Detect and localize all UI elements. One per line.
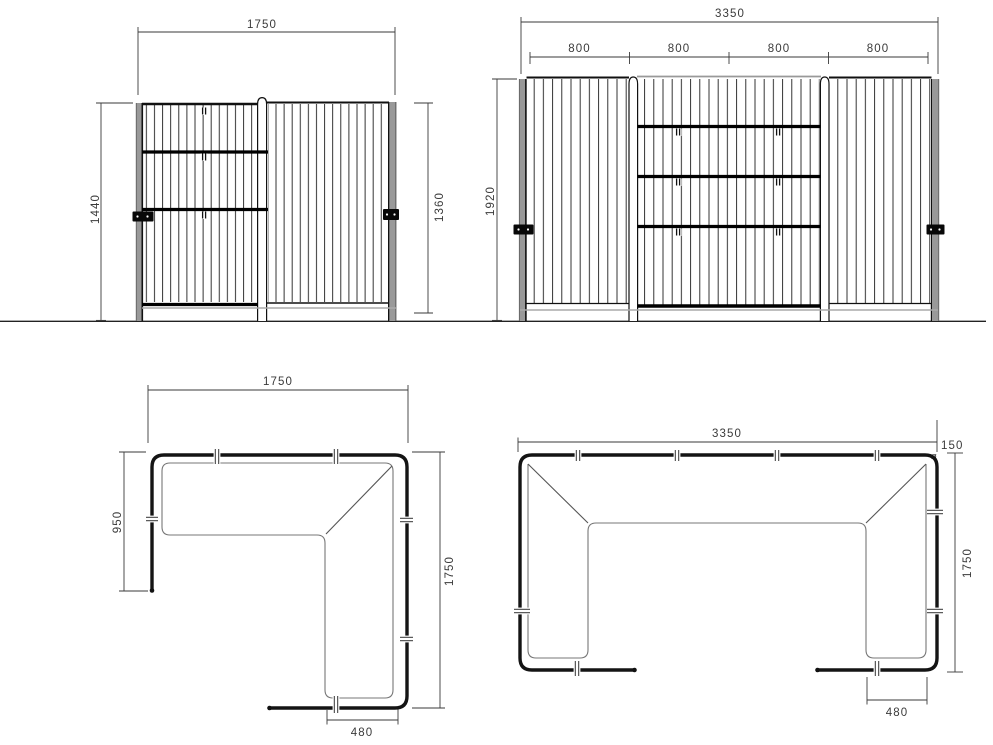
bracket-bolt [386, 213, 388, 215]
left-post [519, 79, 526, 321]
bracket-bolt [136, 215, 138, 217]
frame-tube-2 [820, 77, 829, 321]
dim-side-depth-label: 950 [112, 511, 124, 534]
slat-panel-middle [639, 79, 820, 305]
foot-dot [150, 588, 155, 593]
straight-screen-structure [514, 77, 945, 322]
foot-dot [815, 668, 820, 673]
dim-panel-label-3: 800 [768, 43, 791, 55]
dim-height-total-label: 1440 [90, 194, 102, 224]
dim-width-total-label: 3350 [715, 8, 745, 20]
wall-bracket-left [133, 212, 154, 222]
bracket-bolt [393, 213, 395, 215]
foot-dot [632, 668, 637, 673]
dim-panel-label-4: 800 [867, 43, 890, 55]
dim-panel-label-1: 800 [568, 43, 591, 55]
slat-panel-left [144, 105, 257, 302]
dim-width-label: 1750 [247, 19, 277, 31]
right-post [932, 79, 939, 321]
wall-bracket-right [927, 225, 945, 235]
dim-width-total-label: 3350 [712, 428, 742, 440]
bracket-bolt [517, 228, 519, 230]
dim-panel-depth-label: 480 [351, 727, 374, 739]
bracket-bolt [930, 228, 932, 230]
slat-panel-right [830, 79, 930, 303]
wall-bracket-right [383, 209, 399, 220]
bracket-bolt [527, 228, 529, 230]
screen-dimension-drawing: 1750 1440 1360 [0, 0, 993, 745]
technical-drawing-sheet: 1750 1440 1360 [0, 0, 993, 745]
dim-depth-label: 1750 [444, 556, 456, 586]
slat-panel-left [529, 79, 628, 303]
dim-height-label: 1920 [485, 186, 497, 216]
dim-panel-label-2: 800 [668, 43, 691, 55]
frame-tube-1 [629, 77, 638, 321]
slat-panel-right [268, 104, 388, 302]
corner-screen-structure [133, 98, 400, 321]
dim-depth-label: 1750 [962, 548, 974, 578]
dim-width-label: 1750 [263, 376, 293, 388]
bracket-bolt [938, 228, 940, 230]
dim-panel-depth-label: 480 [886, 707, 909, 719]
dim-height-panel-label: 1360 [434, 192, 446, 222]
dim-tube-label: 150 [941, 440, 964, 452]
foot-dot [267, 706, 272, 711]
bracket-bolt [146, 215, 148, 217]
wall-bracket-left [514, 225, 534, 235]
